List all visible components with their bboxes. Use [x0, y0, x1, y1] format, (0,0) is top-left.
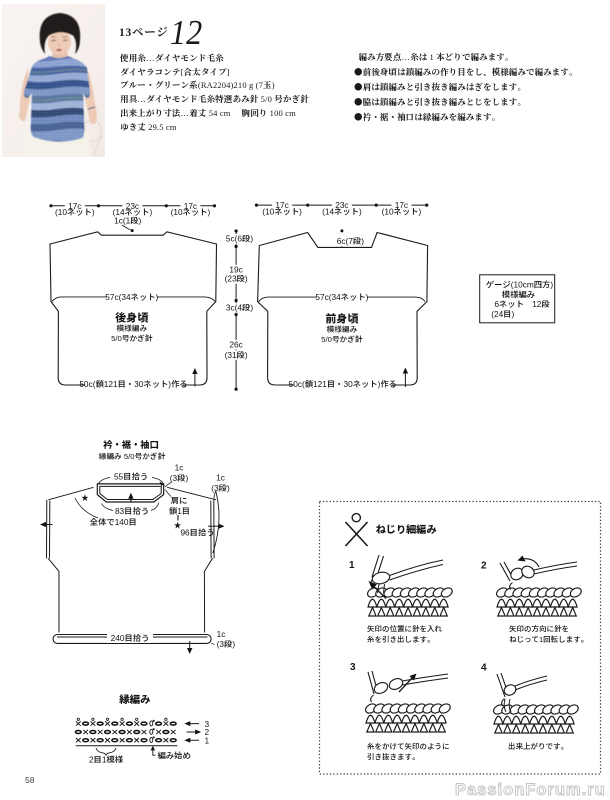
svg-text:矢印の方向に針を: 矢印の方向に針を	[509, 625, 569, 634]
svg-text:ねじって1回転します。: ねじって1回転します。	[509, 635, 588, 644]
svg-text:2: 2	[481, 561, 487, 572]
svg-text:糸をかけて矢印のように: 糸をかけて矢印のように	[367, 742, 450, 751]
svg-text:出来上がりです。: 出来上がりです。	[508, 742, 568, 751]
svg-text:ねじり細編み: ねじり細編み	[376, 521, 438, 536]
svg-text:矢印の位置に針を入れ: 矢印の位置に針を入れ	[367, 625, 442, 634]
svg-text:1: 1	[349, 560, 355, 571]
svg-text:引き抜きます。: 引き抜きます。	[367, 753, 420, 762]
svg-text:4: 4	[481, 663, 487, 674]
svg-text:3: 3	[350, 662, 356, 673]
svg-text:糸を引き出します。: 糸を引き出します。	[367, 635, 435, 644]
